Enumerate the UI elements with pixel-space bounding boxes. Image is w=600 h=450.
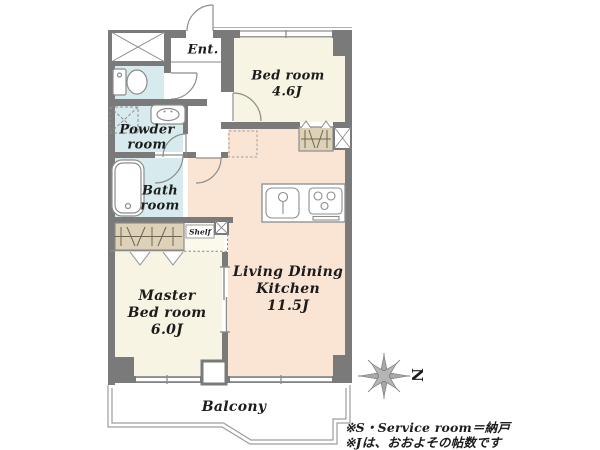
room-label-bath-1: Bath bbox=[142, 185, 178, 198]
window-bedroom-north bbox=[240, 30, 332, 38]
kitchen-counter bbox=[262, 184, 345, 222]
wall-top-right bbox=[332, 30, 352, 38]
wall-ent-bedroom bbox=[221, 30, 234, 92]
meter-box bbox=[111, 32, 165, 62]
room-label-powder-1: Powder bbox=[119, 124, 174, 137]
sink-fixture bbox=[151, 105, 185, 124]
wall-bedroom-bottom bbox=[221, 122, 300, 129]
room-size-bedroom: 4.6J bbox=[272, 86, 302, 99]
room-label-ldk-2: Kitchen bbox=[256, 282, 320, 296]
room-label-master-2: Bed room bbox=[128, 306, 207, 320]
column-southeast bbox=[333, 355, 352, 383]
wall-right bbox=[345, 37, 352, 383]
ldk-closet bbox=[299, 121, 333, 151]
compass-rose bbox=[358, 353, 410, 399]
room-label-bedroom: Bed room bbox=[251, 70, 324, 83]
room-label-bath-2: room bbox=[140, 200, 179, 213]
column-south-middle bbox=[202, 361, 226, 384]
wall-powder-bath bbox=[108, 152, 155, 158]
floor-plan-drawing bbox=[0, 0, 600, 450]
room-label-shelf: Shelf bbox=[189, 228, 211, 236]
room-label-powder-2: room bbox=[127, 139, 166, 152]
door-toilet bbox=[171, 73, 197, 99]
toilet-fixture bbox=[113, 69, 147, 95]
footnote-jou: ※Jは、おおよその帖数です bbox=[345, 432, 502, 450]
column-northeast bbox=[333, 37, 352, 56]
column-southwest bbox=[108, 357, 134, 383]
master-closet bbox=[110, 223, 184, 251]
room-label-balcony: Balcony bbox=[202, 400, 267, 414]
room-label-ldk-1: Living Dining bbox=[233, 265, 343, 279]
bathtub-fixture bbox=[112, 160, 144, 216]
pipe-space bbox=[334, 127, 351, 149]
room-label-entrance: Ent. bbox=[187, 44, 218, 57]
room-size-master: 6.0J bbox=[151, 323, 183, 337]
wall-vestibule-stub bbox=[221, 152, 228, 158]
wall-master-right-upper bbox=[222, 252, 228, 267]
room-label-master-1: Master bbox=[138, 289, 195, 303]
door-entrance bbox=[187, 5, 213, 31]
floor-plan-page: Ent. Bed room 4.6J Powder room Bath room… bbox=[0, 0, 600, 450]
compass-north-label: N bbox=[408, 368, 426, 382]
room-size-ldk: 11.5J bbox=[267, 299, 309, 313]
wall-bath-stub bbox=[183, 152, 196, 158]
